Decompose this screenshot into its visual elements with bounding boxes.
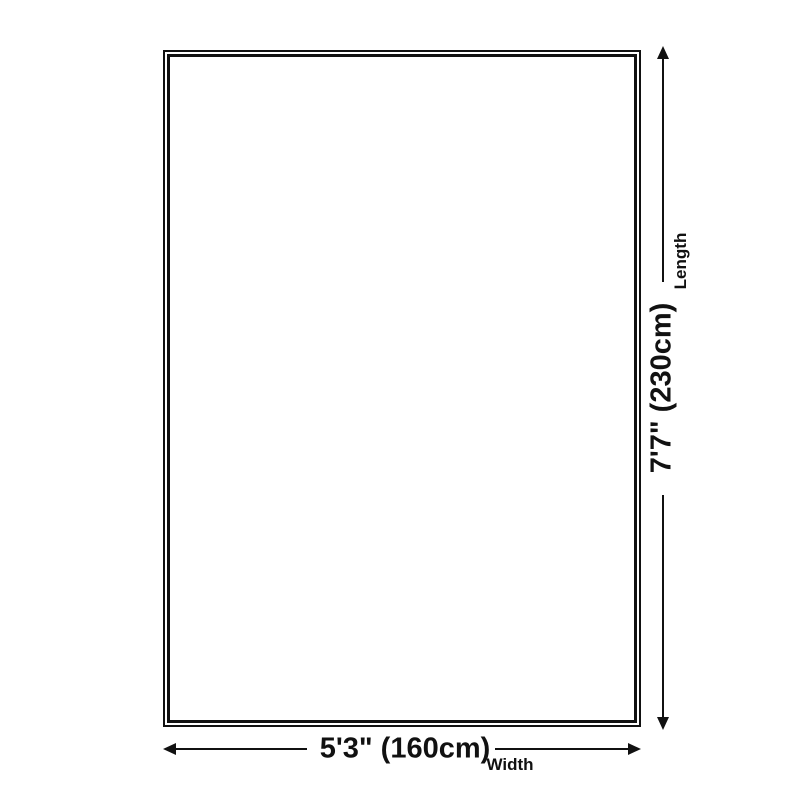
length-label: Length	[671, 233, 691, 290]
rug-inner-border	[167, 54, 637, 723]
arrow-down-icon	[657, 717, 669, 730]
length-value: 7'7" (230cm)	[646, 303, 679, 474]
length-arrow-line-top	[662, 58, 664, 282]
rug-dimension-diagram: Length 7'7" (230cm) 5'3" (160cm) Width	[0, 0, 800, 800]
width-arrow-line-right	[495, 748, 628, 750]
width-label: Width	[486, 755, 533, 775]
width-value: 5'3" (160cm)	[320, 733, 491, 766]
arrow-right-icon	[628, 743, 641, 755]
length-arrow-line-bottom	[662, 495, 664, 718]
width-arrow-line-left	[175, 748, 307, 750]
rug-outline	[163, 50, 641, 727]
